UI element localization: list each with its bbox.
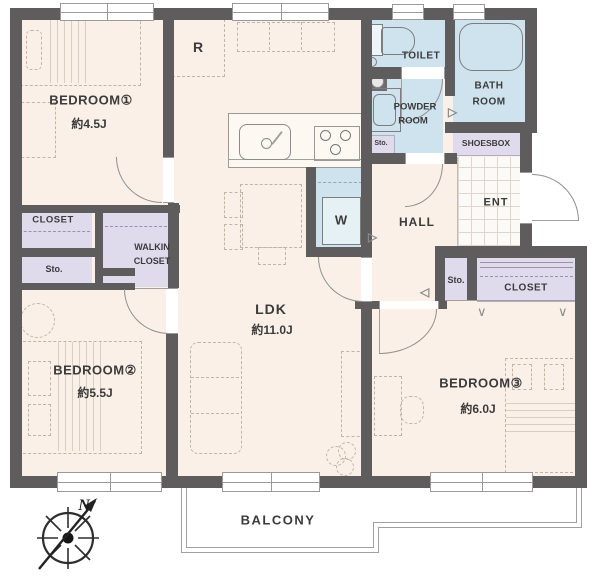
dining-table-ldk [240,184,302,248]
wall [163,8,174,157]
room-size-bedroom3: 約6.0J [460,403,495,417]
step-marker-bedroom3: ◁ [420,286,429,298]
room-label-hall: HALL [399,216,435,230]
entrance-door-leaf [532,220,578,221]
window-mullion [110,473,111,491]
walkin-rod [105,226,167,227]
cupboard-divider2 [301,22,302,50]
label-refrigerator: R [193,39,203,55]
window-mullion [482,473,483,491]
wall [361,300,372,488]
balcony-inner-line [186,547,374,548]
room-size-bedroom1: 約4.5J [71,118,106,132]
balcony-outline [181,552,379,553]
window-bathroom [453,4,485,20]
sofa-ldk [190,342,242,454]
balcony-outline [181,488,182,553]
wall [371,153,405,164]
pillow2-bedroom3 [544,364,564,390]
label-closet-bedroom3: CLOSET [504,282,548,294]
bedroom3-door-leaf [379,309,380,353]
wall [306,247,366,257]
desk-bedroom1 [16,102,56,158]
closet3-rod2 [480,267,573,268]
dining-chair1 [224,192,243,218]
label-storage-bedroom1: Sto. [46,264,63,274]
bed-bedroom1-hatch [50,17,88,83]
table-bedroom2 [20,303,55,338]
door-opening-powder [405,153,445,164]
outside-top-right [537,0,600,131]
room-label-toilet: TOILET [402,50,440,62]
label-washer: W [335,214,347,229]
window-toilet [392,4,424,20]
balcony-inner-line [373,522,577,523]
wall [371,67,401,79]
bathtub [459,23,523,71]
room-label-balcony: BALCONY [241,514,316,529]
sofa-cushion-line2 [191,413,239,414]
window-bedroom1-top [60,3,154,21]
room-label-bathroom-2: ROOM [472,96,505,108]
wall [95,268,135,276]
label-storage-powder: Sto. [374,140,387,148]
room-label-powder-2: ROOM [398,117,428,128]
cupboard-kitchen [237,22,335,52]
balcony-outline [581,488,582,528]
wall [10,283,135,290]
label-closet-bedroom1: CLOSET [32,216,74,227]
pillow2-bedroom2 [28,404,51,436]
room-size-ldk: 約11.0J [251,324,292,338]
wall [166,332,178,482]
room-label-bedroom2: BEDROOM② [53,364,137,379]
plant-ldk3 [336,458,354,476]
balcony-inner-line [186,488,187,548]
room-label-powder-1: POWDER [394,103,437,114]
balcony-inner-line [373,522,374,548]
wall [443,153,457,164]
window-ldk-balcony [222,472,320,492]
pillow-bedroom1 [26,30,42,70]
room-size-bedroom2: 約5.5J [77,387,112,401]
window-bedroom2 [57,472,162,492]
room-label-entrance: ENT [484,197,509,210]
window-mid-line [454,12,484,13]
powder-basin [373,94,396,126]
balcony-inner-line [576,488,577,523]
window-mullion [271,473,272,491]
cupboard-divider1 [269,22,270,50]
room-label-ldk: LDK [255,301,287,317]
washer-shelf [318,182,362,183]
wall [10,248,97,257]
chair-bedroom3 [400,396,424,424]
compass-icon [25,495,111,577]
window-mullion [107,4,108,20]
stove-burner-icon [320,130,331,141]
wall [435,246,445,309]
closet3-rod1 [480,262,573,263]
dining-chair2 [224,224,243,250]
window-mullion [281,4,282,20]
closet-bedroom3-area [477,258,575,302]
room-label-bathroom-1: BATH [474,80,503,92]
door-opening-bedroom3 [379,301,439,309]
wall [525,8,537,133]
wall [435,246,587,258]
room-label-bedroom3: BEDROOM③ [439,377,523,392]
wall [361,8,372,257]
balcony-outline [378,527,582,528]
closet3-door-mark: ∨ [477,305,487,318]
balcony-outline [378,527,379,553]
step-marker-bath: ▷ [448,106,457,118]
closet1-rod [14,231,90,232]
door-opening-entrance [520,172,532,224]
door-opening-bedroom1 [163,157,174,203]
sofa-cushion-line1 [191,377,239,378]
wall [445,122,537,133]
label-walkin-2: CLOSET [134,256,171,266]
floor-plan: ▷ ▷ ◁ ∨ ∨ N BEDROOM① 約4.5J BEDROOM② 約5.5… [0,0,600,577]
wall [306,167,316,257]
label-shoesbox: SHOESBOX [462,139,510,149]
dining-chair3 [258,247,286,265]
stove-burner-icon [330,144,341,155]
closet3-front-line [445,300,575,301]
pillow1-bedroom2 [28,361,51,396]
window-bedroom3 [430,472,533,492]
closet3-door-mark: ∨ [558,305,568,318]
wall [467,257,477,301]
desk-bedroom3 [374,376,402,436]
wall [445,8,455,96]
step-marker-ldk: ▷ [368,231,377,243]
stove-burner-icon [340,130,351,141]
wall [575,246,587,488]
window-ldk-top [232,3,329,21]
label-walkin-1: WALKIN [134,242,170,252]
bed-bedroom3-hatch [506,398,575,432]
closet3-rod3 [480,276,573,277]
label-storage-hall: Sto. [448,275,465,285]
room-label-bedroom1: BEDROOM① [49,94,133,109]
door-opening-toilet [401,67,445,79]
compass-north-label: N [78,497,90,515]
window-mid-line [393,12,423,13]
